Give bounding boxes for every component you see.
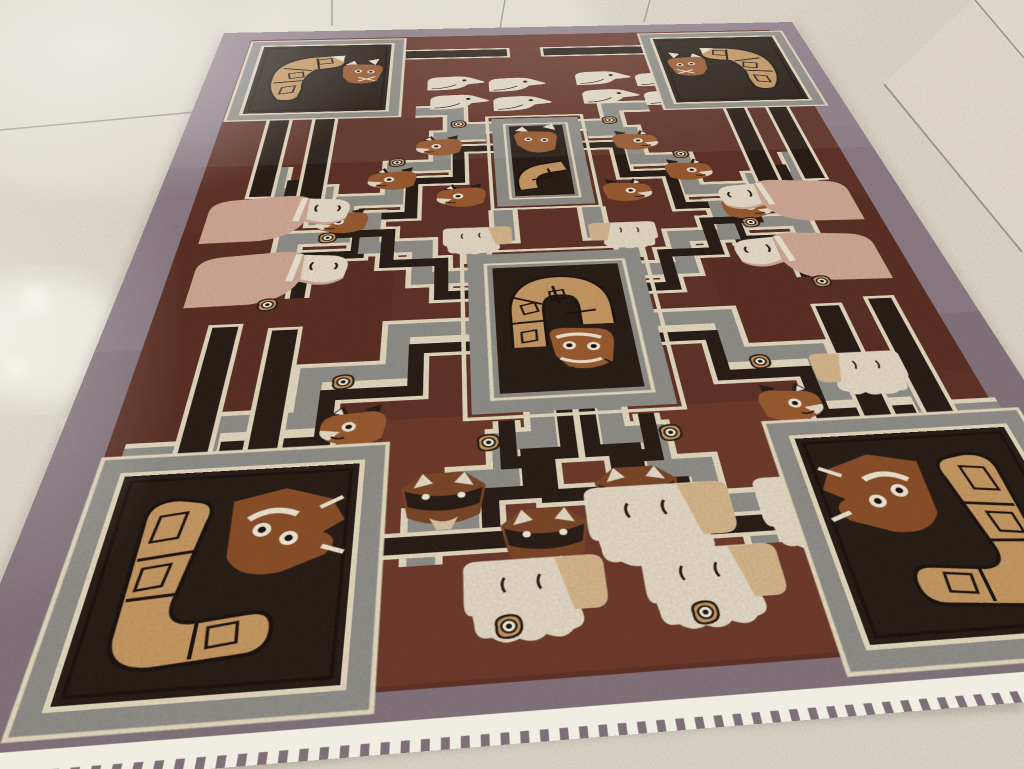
photo-scene xyxy=(0,0,1024,769)
rug-sheen xyxy=(169,22,873,168)
